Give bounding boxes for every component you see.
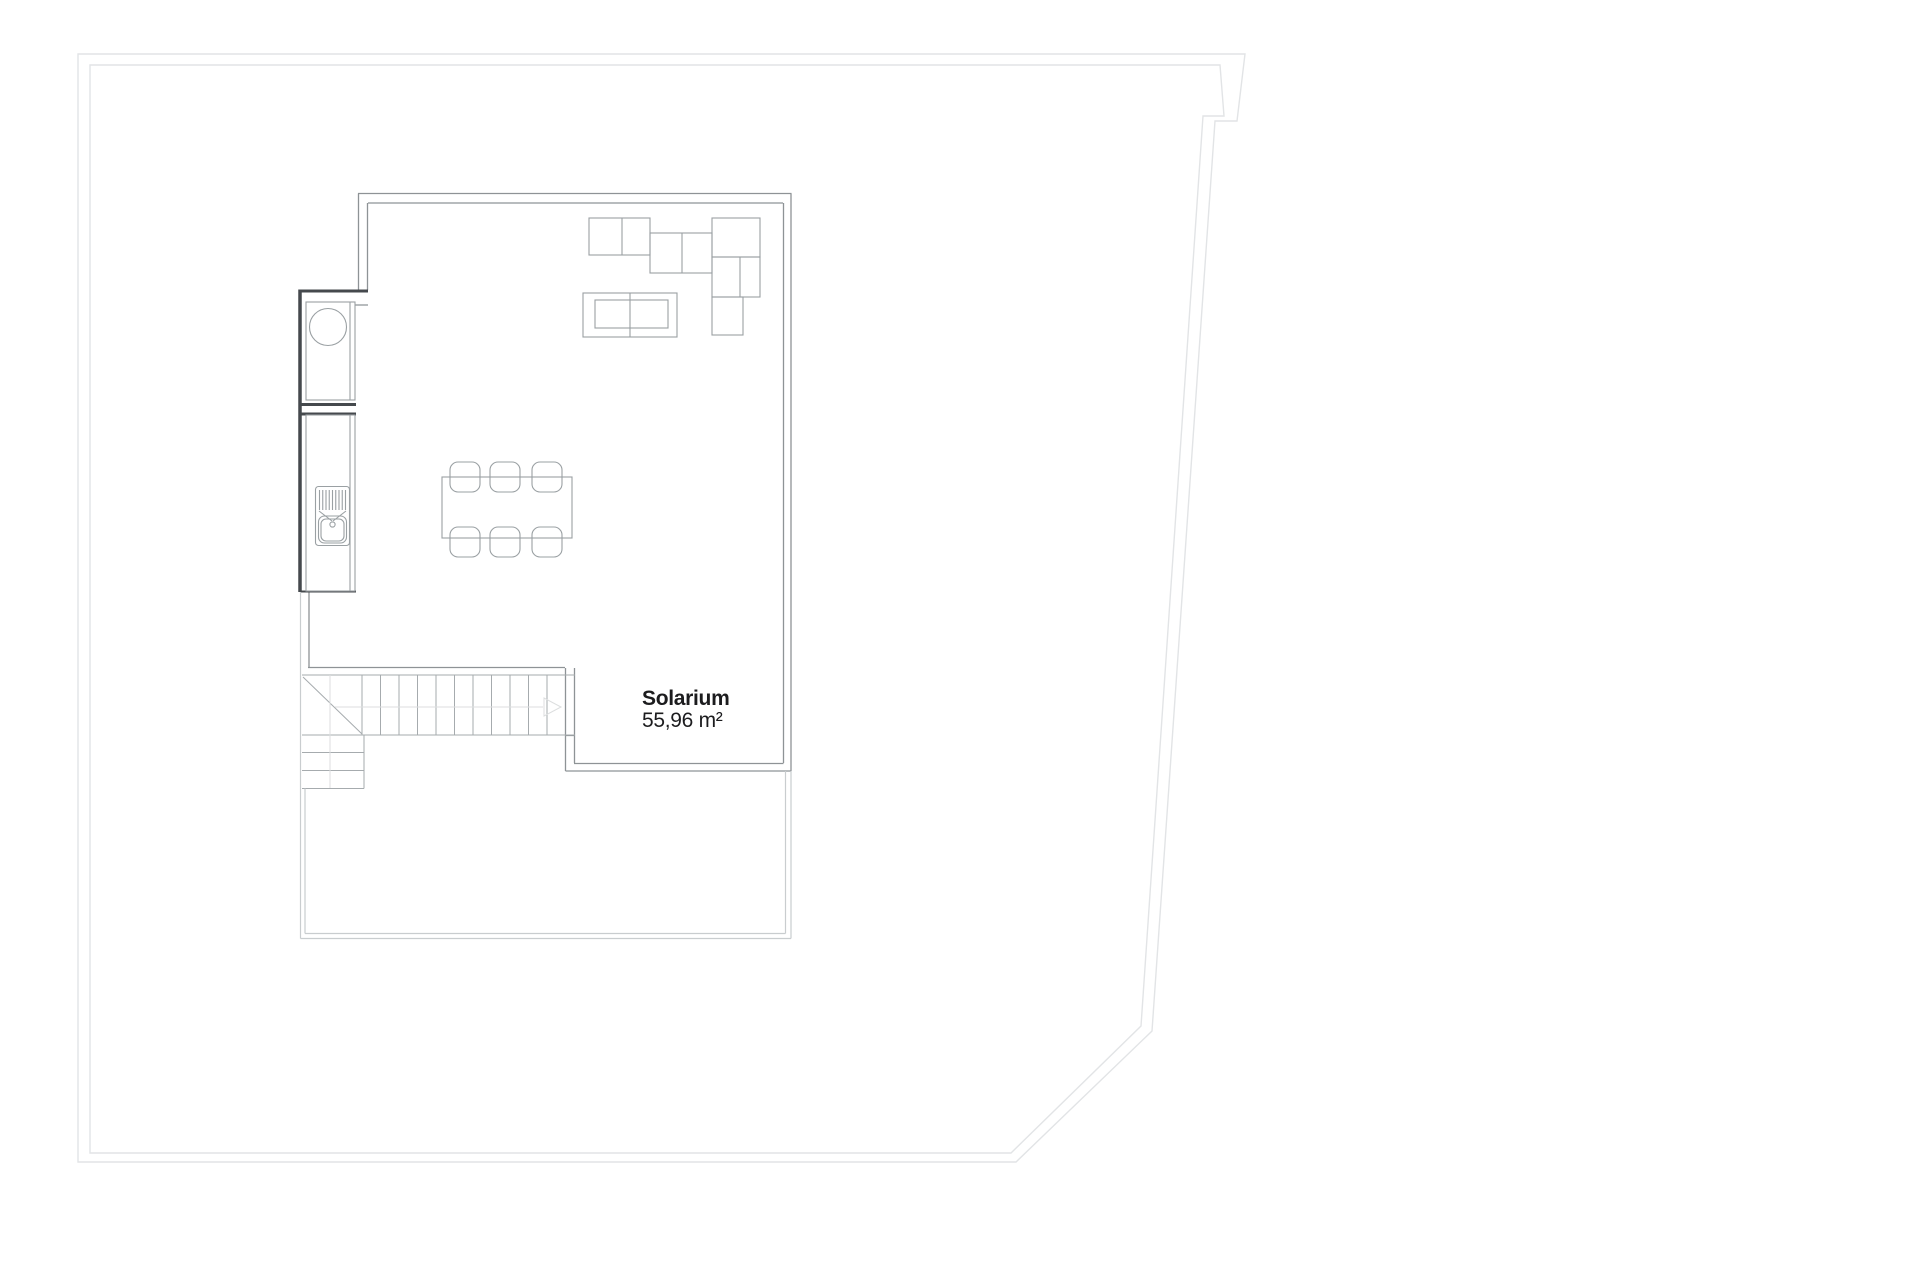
counter-lower-cabinet [306,415,355,591]
property-boundary-inner [90,65,1224,1153]
sofa-seat [712,218,760,257]
property-boundary [78,54,1245,1162]
room-label-group: Solarium 55,96 m² [642,687,729,732]
sofa-seat [712,257,760,297]
bbq-counter [299,290,369,593]
room-label: Solarium [642,687,729,710]
stair-flight-edges [302,675,575,735]
sofa-seat [650,233,712,273]
dining-chair [532,527,562,557]
stair-treads [362,675,547,735]
counter-upper-cabinet [306,302,355,400]
room-area-label: 55,96 m² [642,709,723,732]
floor-plan-canvas: Solarium 55,96 m² [0,0,1920,1280]
sofa-chaise [712,297,743,335]
sofa-seat [589,218,650,255]
floor-plan-page: Solarium 55,96 m² [0,0,1920,1280]
terrace-railing [301,592,792,939]
dining-table [442,477,572,538]
dining-chair [490,527,520,557]
barbecue-sink-icon [316,487,350,546]
dining-chair [450,527,480,557]
staircase [302,675,575,789]
corner-sofa [589,218,760,335]
coffee-table [583,293,677,337]
dining-set [442,462,572,557]
property-boundary-outer [78,54,1245,1162]
stair-lower-steps [302,735,364,789]
round-basin-icon [310,309,347,346]
stair-landing-diagonal [303,677,362,734]
